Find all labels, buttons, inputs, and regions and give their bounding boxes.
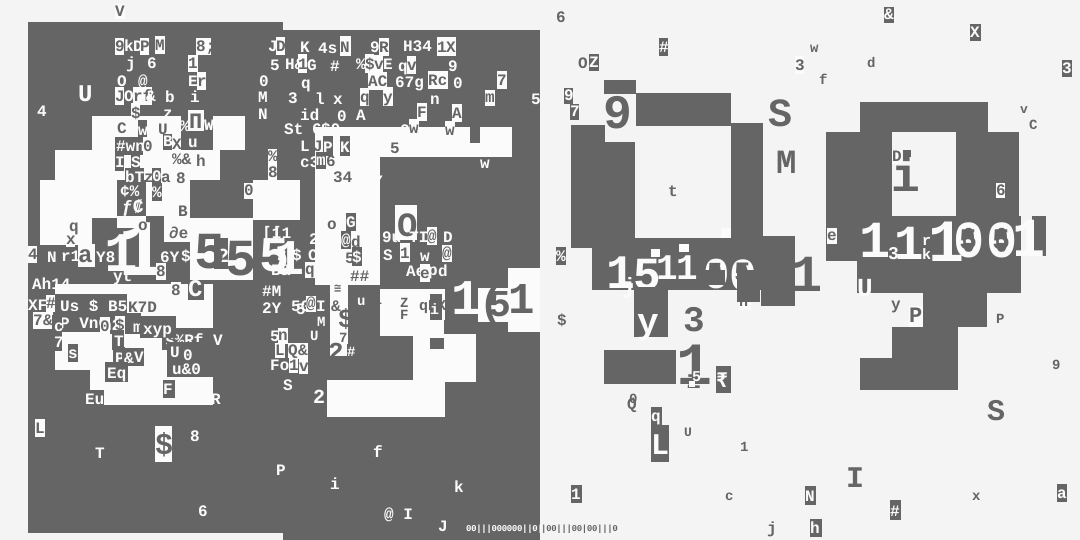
svg-text:5: 5 [390, 140, 400, 158]
svg-text:5: 5 [959, 225, 977, 259]
svg-text:P: P [140, 38, 150, 56]
svg-text:5: 5 [225, 232, 256, 291]
svg-text:w: w [409, 120, 419, 138]
svg-text:i: i [330, 476, 340, 494]
svg-text:i: i [430, 302, 439, 319]
svg-text:q: q [301, 75, 311, 93]
svg-text:@: @ [306, 295, 316, 313]
svg-text:W: W [204, 117, 214, 135]
svg-text:7: 7 [570, 103, 580, 121]
svg-text:TI: TI [409, 229, 428, 247]
svg-text:v: v [299, 358, 309, 376]
svg-text:L: L [35, 420, 45, 438]
svg-text:C: C [1029, 118, 1038, 134]
svg-text:H34: H34 [403, 38, 432, 56]
svg-text:e: e [420, 265, 430, 283]
svg-text:$: $ [155, 430, 173, 464]
svg-text:f: f [373, 444, 383, 462]
svg-text:J: J [438, 518, 448, 536]
svg-text:%&: %& [172, 151, 192, 169]
svg-text:8: 8 [176, 170, 186, 188]
svg-text:1: 1 [188, 55, 198, 73]
svg-text:G: G [346, 214, 356, 232]
svg-text:$: $ [292, 247, 302, 265]
svg-text:U: U [78, 82, 92, 109]
svg-text:##: ## [350, 268, 370, 286]
svg-text:F: F [400, 308, 408, 324]
svg-text:j: j [767, 520, 777, 538]
svg-text:y: y [891, 296, 901, 314]
svg-text:G: G [307, 57, 317, 75]
svg-text:6: 6 [198, 503, 208, 521]
svg-text:$: $ [181, 248, 191, 266]
svg-text:v: v [407, 57, 417, 75]
svg-text:Rc: Rc [428, 72, 447, 90]
svg-text:0: 0 [453, 75, 463, 93]
svg-text:Y: Y [373, 173, 383, 191]
svg-text:≅: ≅ [334, 282, 341, 296]
svg-text:2: 2 [572, 207, 591, 244]
svg-text:4: 4 [28, 246, 38, 264]
svg-text:n: n [430, 91, 440, 109]
svg-text:a: a [1057, 485, 1067, 503]
svg-text:5: 5 [270, 57, 280, 75]
svg-text:y: y [637, 303, 659, 344]
svg-text:5: 5 [992, 225, 1010, 259]
svg-text:yt: yt [113, 268, 132, 286]
svg-text:U: U [310, 329, 318, 345]
svg-text:#: # [890, 503, 900, 521]
svg-text:67g: 67g [395, 74, 424, 92]
svg-text:9: 9 [448, 58, 458, 76]
svg-text:|00|||00|00|||0: |00|||00|00|||0 [541, 524, 618, 534]
svg-text:u: u [357, 294, 365, 310]
svg-text:U: U [170, 344, 180, 362]
svg-text:8: 8 [171, 282, 181, 300]
svg-text:N: N [340, 39, 350, 57]
svg-text:9: 9 [603, 89, 632, 143]
svg-text:3: 3 [1062, 60, 1072, 78]
svg-text:u: u [188, 134, 198, 152]
svg-text:⌈1: ⌈1 [272, 225, 291, 243]
svg-text:K: K [340, 139, 350, 157]
svg-text:j: j [126, 55, 136, 73]
svg-text:I: I [846, 463, 864, 497]
svg-text:0: 0 [244, 182, 254, 200]
svg-text:4s: 4s [318, 40, 337, 58]
svg-text:#: # [46, 295, 56, 313]
svg-text:M: M [155, 37, 165, 55]
svg-text:8: 8 [268, 164, 278, 182]
svg-text:Fo: Fo [270, 357, 289, 375]
svg-text:B: B [178, 203, 188, 221]
svg-text:#M: #M [262, 283, 281, 301]
svg-text:₹: ₹ [716, 371, 728, 394]
svg-text:5: 5 [194, 225, 225, 284]
svg-text:Π: Π [189, 110, 202, 135]
svg-text:S: S [768, 94, 792, 139]
svg-text:3: 3 [288, 90, 298, 108]
svg-text:y: y [383, 89, 393, 107]
svg-text:∂e: ∂e [169, 225, 188, 243]
svg-text:A: A [356, 107, 366, 125]
svg-text:O: O [578, 55, 588, 73]
svg-text:I: I [115, 154, 125, 172]
svg-text:Eu: Eu [85, 391, 104, 409]
svg-text:i: i [891, 152, 920, 206]
svg-text:o: o [138, 217, 148, 235]
svg-text:P: P [996, 312, 1004, 328]
svg-text:c: c [725, 489, 733, 505]
svg-text:o: o [327, 216, 337, 234]
svg-text:t: t [668, 183, 678, 201]
svg-text:00|||000000||0|0: 00|||000000||0|0 [466, 524, 548, 534]
svg-text:h: h [810, 520, 820, 538]
svg-text:s: s [68, 345, 78, 363]
svg-text:h: h [196, 153, 206, 171]
svg-text:8: 8 [190, 428, 200, 446]
svg-text:0: 0 [143, 138, 153, 156]
svg-text:2: 2 [328, 338, 344, 368]
svg-text:6: 6 [996, 182, 1006, 200]
svg-text:1: 1 [1012, 210, 1045, 273]
svg-text:%: % [152, 184, 162, 202]
svg-text:a: a [161, 169, 171, 187]
svg-text:P: P [276, 462, 286, 480]
svg-text:#: # [330, 58, 340, 76]
svg-text:N: N [805, 488, 815, 506]
svg-text:z: z [349, 360, 357, 376]
svg-text:N: N [258, 106, 268, 124]
svg-text:w: w [480, 155, 490, 173]
svg-text:x: x [972, 489, 981, 505]
svg-text:7: 7 [33, 312, 43, 330]
svg-text:w: w [810, 41, 819, 57]
svg-text:4: 4 [37, 103, 47, 121]
svg-text:X: X [446, 39, 456, 57]
svg-text:L: L [651, 430, 669, 464]
svg-text:R: R [379, 39, 389, 57]
svg-text:d: d [438, 263, 448, 281]
svg-text:&: & [43, 312, 53, 330]
svg-text:v: v [1020, 102, 1028, 117]
svg-text:T: T [95, 445, 105, 463]
svg-text:S: S [283, 377, 293, 395]
svg-text:6: 6 [556, 9, 566, 27]
svg-text:q: q [651, 408, 661, 426]
svg-text:1: 1 [451, 273, 481, 330]
svg-text:V: V [115, 3, 125, 21]
svg-text:S: S [987, 396, 1005, 430]
svg-text:I: I [316, 298, 326, 316]
svg-text:2Y: 2Y [262, 300, 282, 318]
svg-text:i: i [190, 89, 200, 107]
svg-text:e: e [827, 227, 837, 245]
svg-text:S: S [383, 247, 393, 265]
svg-text:R: R [211, 391, 221, 409]
svg-text:5: 5 [531, 91, 541, 109]
svg-text:1: 1 [740, 440, 748, 456]
svg-text:P: P [909, 304, 922, 329]
svg-text:7: 7 [497, 72, 507, 90]
svg-text:u&0: u&0 [172, 361, 201, 379]
svg-text:Eq: Eq [107, 365, 126, 383]
svg-text:m: m [316, 152, 326, 170]
svg-text:E: E [383, 56, 393, 74]
svg-text:8;: 8; [196, 38, 215, 56]
svg-text:B&: B& [271, 262, 291, 280]
svg-text:X: X [970, 24, 980, 42]
svg-text:@ I: @ I [384, 506, 413, 524]
svg-text:1: 1 [400, 245, 410, 263]
svg-text:Z: Z [589, 54, 599, 72]
svg-text:U: U [684, 425, 692, 440]
svg-text:r1: r1 [61, 248, 80, 266]
svg-text:M: M [776, 146, 796, 184]
svg-text:xyp: xyp [143, 321, 172, 339]
svg-text:m: m [485, 89, 495, 107]
svg-text:1: 1 [289, 357, 299, 375]
svg-text:$: $ [557, 312, 567, 330]
svg-text:A: A [452, 105, 462, 123]
svg-text:1: 1 [676, 249, 698, 290]
svg-text:q: q [360, 89, 370, 107]
svg-text:ƒ₡: ƒ₡ [122, 198, 144, 218]
svg-text:d: d [867, 56, 875, 72]
svg-text:2: 2 [313, 387, 325, 410]
svg-text:Ah14: Ah14 [32, 276, 71, 294]
svg-text:1: 1 [571, 486, 581, 504]
svg-text:&: & [884, 6, 894, 24]
svg-text:%: % [556, 248, 566, 266]
svg-text:D: D [276, 38, 286, 56]
svg-text:6: 6 [147, 55, 157, 73]
svg-text:M: M [258, 89, 268, 107]
svg-text:7: 7 [54, 334, 64, 352]
svg-text:1: 1 [859, 214, 890, 273]
svg-text:@: @ [427, 228, 437, 246]
svg-text:St: St [284, 121, 303, 139]
svg-text:1: 1 [791, 248, 822, 307]
svg-text:9: 9 [1052, 358, 1060, 374]
svg-text:F: F [163, 381, 173, 399]
svg-text:3: 3 [683, 301, 705, 342]
svg-text:3: 3 [795, 57, 805, 75]
svg-text:U: U [857, 274, 873, 304]
svg-text:x: x [333, 91, 343, 109]
svg-text:V: V [134, 349, 144, 367]
svg-text:8: 8 [156, 263, 166, 281]
svg-text:f: f [819, 73, 827, 89]
svg-text:N: N [47, 249, 57, 267]
svg-text:0: 0 [100, 318, 110, 336]
svg-text:q: q [69, 218, 79, 236]
svg-text:1: 1 [894, 218, 923, 274]
svg-text:M: M [317, 315, 325, 331]
svg-text:k: k [454, 479, 464, 497]
svg-text:1: 1 [508, 277, 534, 327]
svg-text:#: # [347, 345, 355, 361]
svg-text:a: a [375, 123, 385, 141]
svg-text:@: @ [442, 245, 452, 263]
svg-text:@: @ [341, 232, 351, 250]
svg-text:$: $ [352, 249, 362, 267]
svg-text:C: C [188, 277, 202, 304]
svg-text:34: 34 [333, 169, 353, 187]
svg-text:Q: Q [627, 396, 637, 414]
svg-text:#: # [659, 39, 669, 57]
svg-text:C: C [117, 120, 127, 138]
svg-text:&: & [146, 88, 156, 106]
svg-text:i: i [373, 292, 382, 309]
svg-text:w: w [445, 122, 455, 140]
svg-text:q: q [305, 261, 315, 279]
